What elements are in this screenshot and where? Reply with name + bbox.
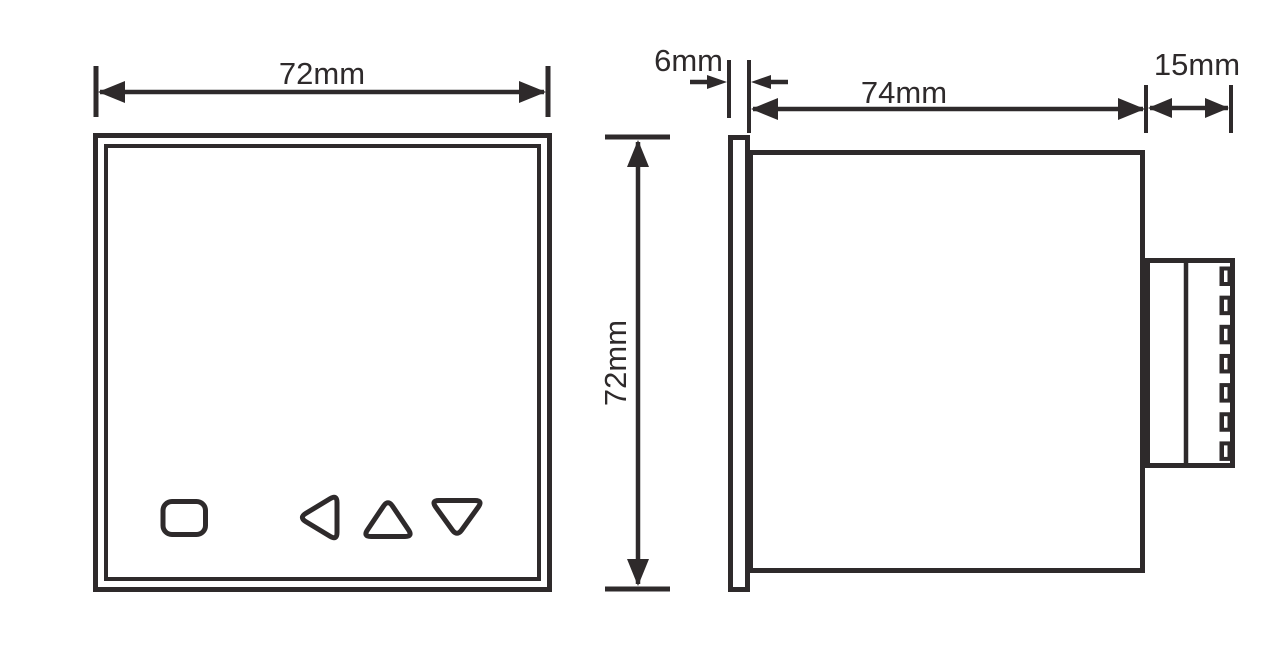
terminal-screw-slot (1224, 271, 1228, 283)
down-arrow-button-icon (434, 501, 480, 534)
arrowhead-right-icon (519, 81, 546, 103)
up-arrow-button-icon (366, 503, 410, 537)
dim-front-height: 72mm (598, 137, 670, 589)
left-arrow-button-icon (302, 497, 337, 538)
arrowhead-left-icon (1148, 98, 1172, 118)
dimension-drawing: 72mm 72mm 6mm 74mm 15mm (0, 0, 1284, 648)
dim-bezel-depth: 6mm (654, 43, 788, 133)
side-view (731, 138, 1233, 590)
dim-bezel-depth-label: 6mm (654, 43, 723, 78)
arrowhead-up-icon (627, 140, 649, 167)
terminal-screw-slot (1224, 300, 1228, 312)
side-body-outline (751, 153, 1143, 571)
dim-terminal-depth: 15mm (1148, 47, 1240, 133)
terminal-screw-slot (1224, 416, 1228, 428)
dim-body-depth-label: 74mm (861, 75, 947, 110)
dim-body-depth: 74mm (751, 75, 1146, 133)
terminal-screw-slot (1224, 387, 1228, 399)
arrowhead-left-icon (98, 81, 125, 103)
front-keypad (163, 497, 480, 538)
arrowhead-right-icon (1118, 98, 1145, 120)
terminal-screw-slot (1224, 329, 1228, 341)
arrowhead-left-icon (751, 75, 771, 89)
dim-front-height-label: 72mm (598, 320, 633, 406)
side-bezel-plate (731, 138, 748, 590)
terminal-screw-slot (1224, 358, 1228, 370)
set-button-icon (163, 502, 206, 535)
arrowhead-right-icon (1205, 98, 1229, 118)
front-view (96, 136, 550, 590)
arrowhead-left-icon (751, 98, 778, 120)
arrowhead-down-icon (627, 559, 649, 586)
dim-front-width: 72mm (96, 56, 548, 117)
dim-front-width-label: 72mm (279, 56, 365, 91)
terminal-screw-slot (1224, 445, 1228, 457)
terminal-screws (1220, 267, 1232, 461)
dim-terminal-depth-label: 15mm (1154, 47, 1240, 82)
